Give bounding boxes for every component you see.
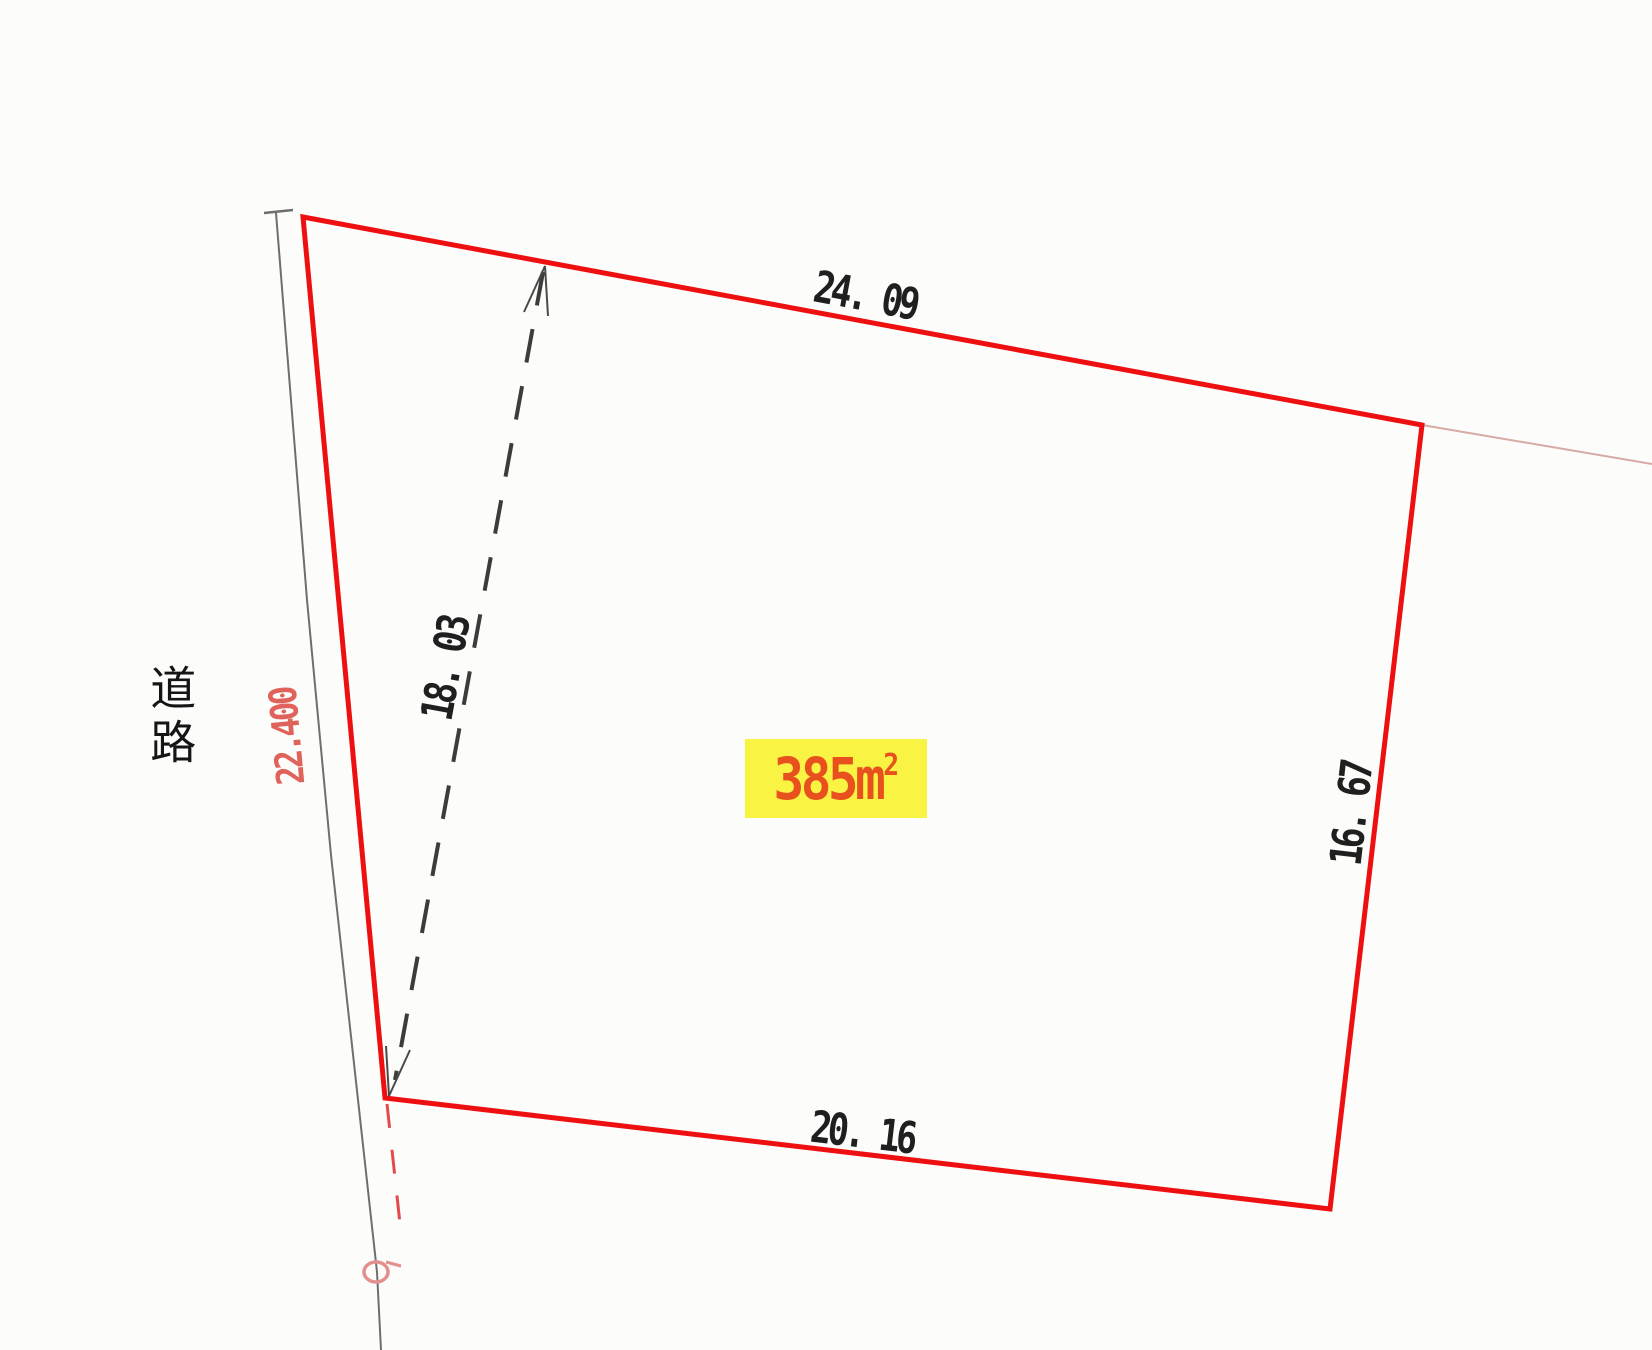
- parcel-area-number: 385m: [774, 745, 883, 813]
- road-label: 道路: [145, 664, 196, 772]
- road-line-top-tick: [264, 210, 293, 213]
- aux-red-dashed-line: [387, 1104, 401, 1233]
- parcel-area-value: 385m2: [774, 745, 899, 813]
- parcel-area-superscript: 2: [883, 748, 899, 783]
- boundary-extension-line: [1422, 425, 1652, 464]
- parcel-boundary: [303, 217, 1422, 1209]
- parcel-area-highlight: 385m2: [745, 739, 927, 818]
- parcel-survey-map: 24. 09 16. 67 20. 16 18. 03 22.400 道路 38…: [0, 0, 1652, 1350]
- road-frontage-dimension-label: 22.400: [261, 687, 314, 787]
- survey-marker-tail: [386, 1262, 401, 1266]
